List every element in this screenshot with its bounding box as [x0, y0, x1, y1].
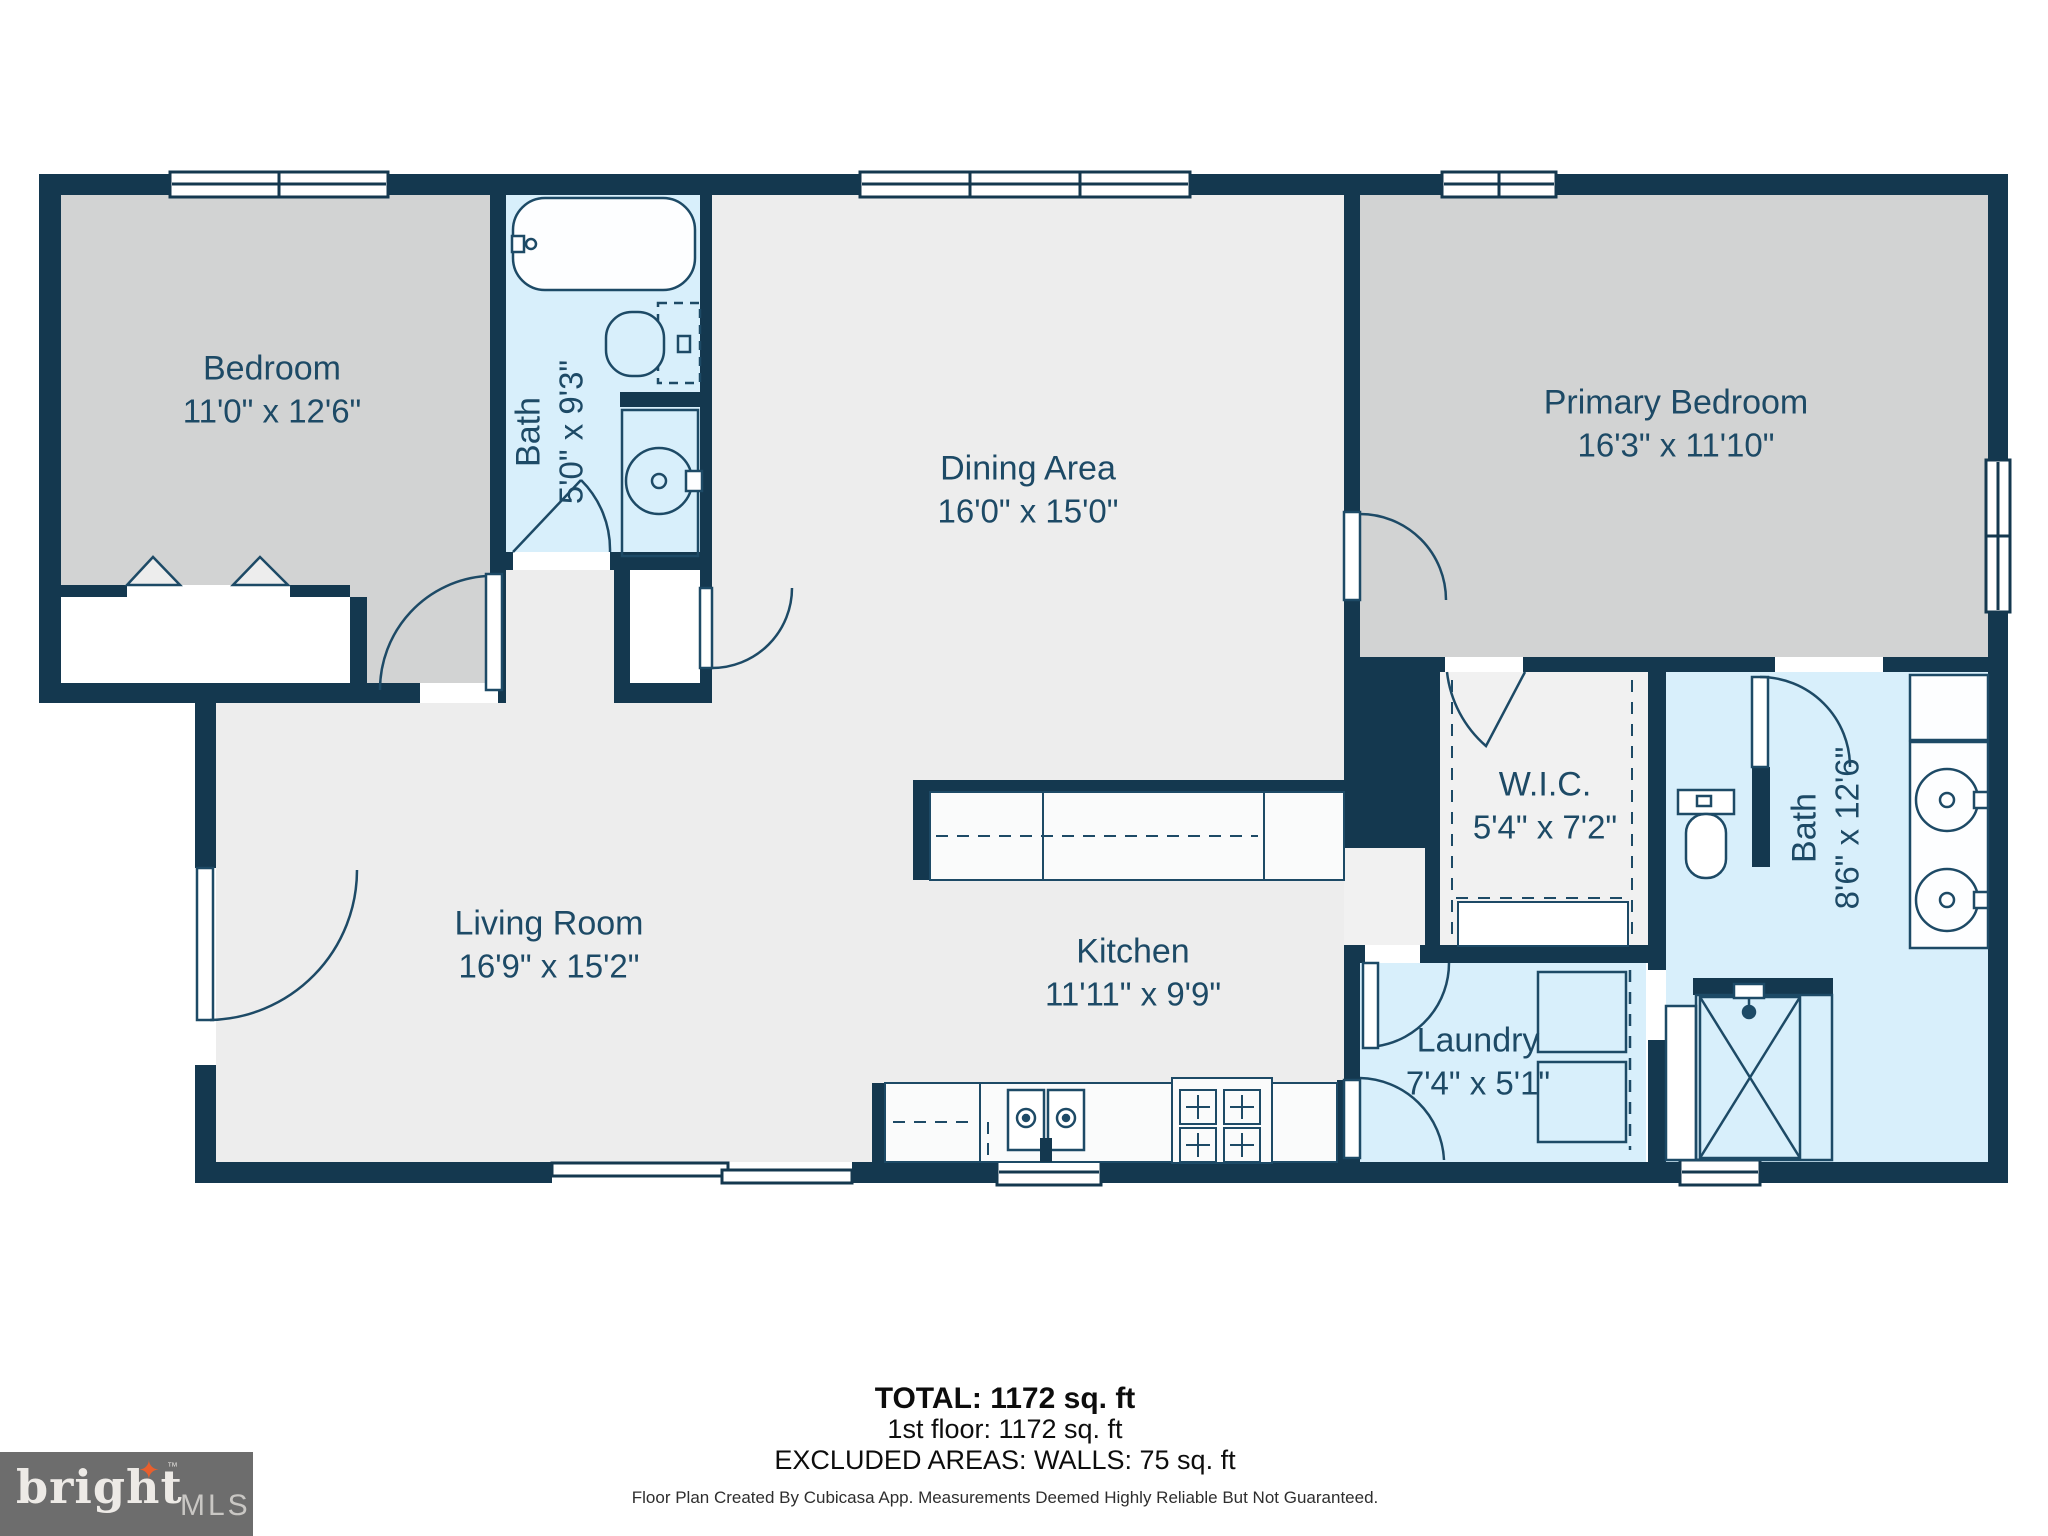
room-dims: 11'11" x 9'9": [1045, 974, 1221, 1017]
laundry-bath-doorway: [1648, 970, 1666, 1040]
room-dims: 5'4" x 7'2": [1473, 807, 1617, 850]
room-dims: 16'9" x 15'2": [455, 946, 644, 989]
room-label-living-room: Living Room 16'9" x 15'2": [455, 901, 644, 988]
room-dims: 16'0" x 15'0": [938, 491, 1119, 534]
room-dims: 11'0" x 12'6": [183, 391, 362, 434]
window-bath-bottom-icon: [1680, 1160, 1760, 1185]
trademark-symbol: ™: [167, 1461, 178, 1473]
room-name: Bath: [506, 360, 550, 504]
room-name: Bedroom: [183, 346, 362, 390]
floor-plan-drawing: [0, 0, 2048, 1536]
room-name: W.I.C.: [1473, 762, 1617, 806]
toilet-right-icon: [1678, 790, 1734, 878]
bright-mls-star-icon: ✦: [138, 1455, 160, 1486]
bathtub-icon: [512, 198, 695, 290]
room-label-laundry: Laundry 7'4" x 5'1": [1406, 1018, 1550, 1105]
room-name: Kitchen: [1045, 929, 1221, 973]
first-floor-area-text: 1st floor: 1172 sq. ft: [887, 1414, 1122, 1445]
stove-icon: [1172, 1078, 1272, 1163]
room-name: Dining Area: [938, 446, 1119, 490]
bright-mls-logo-suffix-text: MLS: [180, 1489, 251, 1523]
window-primary-right-icon: [1986, 460, 2010, 612]
room-label-primary-bedroom: Primary Bedroom 16'3" x 11'10": [1544, 380, 1809, 467]
room-label-dining-area: Dining Area 16'0" x 15'0": [938, 446, 1119, 533]
room-dims: 7'4" x 5'1": [1406, 1063, 1550, 1106]
room-name: Bath: [1782, 747, 1826, 910]
room-name: Living Room: [455, 901, 644, 945]
vanity-right-icon: [1910, 675, 1988, 948]
total-area-text: TOTAL: 1172 sq. ft: [875, 1382, 1136, 1416]
room-dims: 8'6" x 12'6": [1827, 747, 1870, 910]
room-label-wic: W.I.C. 5'4" x 7'2": [1473, 762, 1617, 849]
disclaimer-text: Floor Plan Created By Cubicasa App. Meas…: [632, 1488, 1379, 1508]
room-dims: 5'0" x 9'3": [551, 360, 594, 504]
window-primary-top-icon: [1442, 172, 1556, 197]
window-kitchen-bottom-icon: [997, 1160, 1101, 1185]
room-dims: 16'3" x 11'10": [1544, 425, 1809, 468]
window-bedroom-top-icon: [170, 172, 388, 197]
kitchen-counter-icon: [930, 792, 1344, 880]
excluded-areas-text: EXCLUDED AREAS: WALLS: 75 sq. ft: [774, 1445, 1235, 1476]
room-label-bath-left: Bath 5'0" x 9'3": [506, 360, 593, 504]
room-label-kitchen: Kitchen 11'11" x 9'9": [1045, 929, 1221, 1016]
floor-plan-page: Bedroom 11'0" x 12'6" Bath 5'0" x 9'3" D…: [0, 0, 2048, 1536]
window-dining-top-icon: [860, 172, 1190, 197]
room-name: Laundry: [1406, 1018, 1550, 1062]
room-name: Primary Bedroom: [1544, 380, 1809, 424]
room-label-bedroom: Bedroom 11'0" x 12'6": [183, 346, 362, 433]
room-label-bath-right: Bath 8'6" x 12'6": [1782, 747, 1869, 910]
sliding-door-icon: [552, 1163, 852, 1183]
